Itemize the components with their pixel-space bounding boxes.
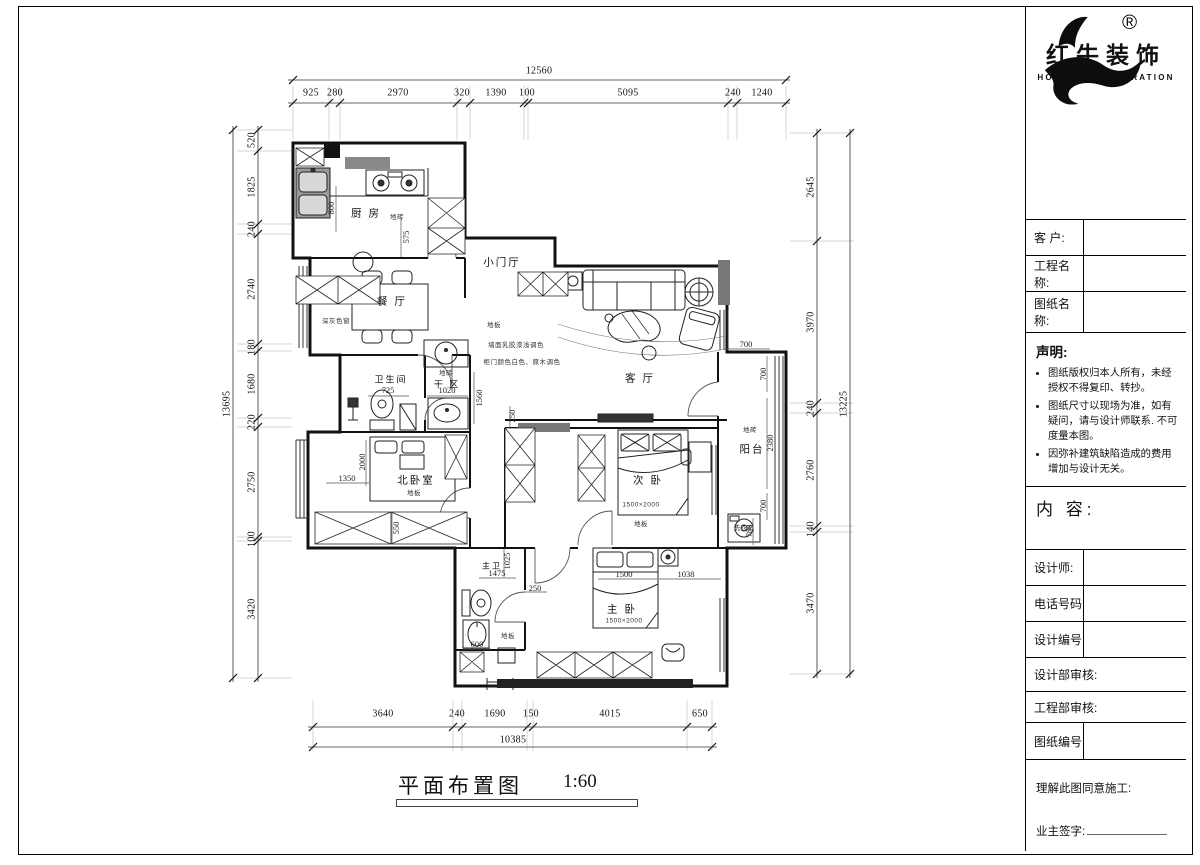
room-label-north-bedroom: 北卧室 (397, 473, 435, 488)
phone-label: 电话号码 (1026, 586, 1084, 621)
plan-dim-800: 800 (326, 202, 336, 215)
dim-top-total: 12560 (526, 66, 553, 77)
field-drawing-name: 图纸名称: (1026, 292, 1186, 333)
room-label-kitchen: 厨 房 (351, 206, 381, 221)
dim-top-5: 1390 (485, 88, 506, 99)
plan-dim-2000: 2000 (357, 454, 367, 471)
dim-top-9: 1240 (751, 88, 772, 99)
field-design-review: 设计部审核: (1026, 658, 1186, 692)
plan-dim-700b: 700 (758, 368, 768, 381)
note-wall-paint: 墙面乳胶漆浅调色 (488, 339, 544, 349)
engineering-review-label: 工程部审核: (1026, 699, 1097, 716)
hongniu-bull-logo-icon: ® (1026, 6, 1146, 106)
field-designer: 设计师: (1026, 550, 1186, 586)
room-label-bathroom: 卫生间 (374, 373, 407, 386)
dim-left-6: 1680 (247, 373, 258, 394)
plan-dim-250b: 250 (507, 410, 517, 423)
owner-signature-label: 业主签字: (1036, 826, 1085, 838)
note-second-bed-size: 1500×2000 (622, 502, 659, 509)
registered-mark: ® (1122, 11, 1137, 34)
title-underline-bar (396, 799, 638, 807)
plan-scale: 1:60 (563, 771, 597, 793)
dim-top-4: 320 (454, 88, 470, 99)
dim-top-1: 925 (303, 88, 319, 99)
dim-top-3: 2970 (387, 88, 408, 99)
plan-dim-1350: 1350 (339, 473, 356, 483)
dim-top-7: 5095 (617, 88, 638, 99)
plan-dim-600: 600 (471, 639, 484, 649)
dim-left-5: 180 (247, 339, 258, 355)
note-north-floor: 地板 (407, 487, 421, 497)
dim-bottom-6: 650 (692, 709, 708, 720)
statement-item: 图纸尺寸以现场为准，如有疑问，请与设计师联系. 不可度量本图。 (1048, 400, 1180, 445)
plan-dim-2380: 2380 (765, 435, 775, 452)
logo-cell: ® 红牛装饰 HONG NIU DECORATION (1026, 6, 1186, 220)
designer-label: 设计师: (1026, 550, 1084, 585)
plan-dim-1475: 1475 (489, 568, 506, 578)
statement-list: 图纸版权归本人所有，未经授权不得复印、转抄。 图纸尺寸以现场为准，如有疑问，请与… (1036, 367, 1180, 477)
room-label-balcony: 阳台 (740, 442, 765, 457)
field-project-name: 工程名称: (1026, 256, 1186, 292)
note-cabinet-color: 柜门颜色白色、原木调色 (484, 356, 561, 366)
plan-dim-550: 550 (391, 522, 401, 535)
dim-left-4: 2740 (247, 278, 258, 299)
statement-item: 图纸版权归本人所有，未经授权不得复印、转抄。 (1048, 367, 1180, 397)
dim-left-total: 13695 (222, 391, 233, 418)
dim-left-10: 3420 (247, 598, 258, 619)
note-kitchen-tile: 地砖 (390, 211, 404, 221)
design-number-label: 设计编号 (1026, 622, 1084, 657)
dim-top-8: 240 (725, 88, 741, 99)
field-design-number: 设计编号 (1026, 622, 1186, 658)
dim-left-7: 220 (247, 414, 258, 430)
plan-dim-575: 575 (401, 231, 411, 244)
drawing-name-label: 图纸名称: (1026, 292, 1084, 332)
field-drawing-number: 图纸编号 (1026, 723, 1186, 760)
room-label-dining: 餐 厅 (377, 294, 407, 309)
dim-right-3: 240 (806, 400, 817, 416)
dim-top-2: 280 (327, 88, 343, 99)
owner-signature-line (1087, 822, 1167, 835)
note-master-bed-size: 1500×2000 (605, 618, 642, 625)
floor-plan-drawing (0, 0, 1200, 865)
dim-right-5: 140 (806, 521, 817, 537)
room-label-foyer: 小门厅 (483, 255, 521, 270)
dim-bottom-5: 4015 (599, 709, 620, 720)
plan-dim-1038: 1038 (678, 569, 695, 579)
content-section: 内 容: (1026, 487, 1186, 550)
agree-construction-label: 理解此图同意施工: (1036, 780, 1186, 796)
room-label-master-bedroom: 主 卧 (607, 602, 637, 617)
dim-bottom-4: 150 (523, 709, 539, 720)
dim-right-2: 3970 (806, 311, 817, 332)
dim-right-1: 2645 (806, 176, 817, 197)
dim-right-total: 13225 (839, 391, 850, 418)
note-balcony-tile: 地砖 (743, 424, 757, 434)
client-label: 客 户: (1026, 220, 1084, 255)
plan-dim-1560: 1560 (474, 390, 484, 407)
plan-dim-725: 725 (382, 385, 395, 395)
dim-bottom-total: 10385 (500, 735, 527, 746)
design-review-label: 设计部审核: (1026, 666, 1097, 683)
plan-dim-1025: 1025 (502, 553, 512, 570)
dim-left-8: 2750 (247, 471, 258, 492)
note-washing-machine: 洗衣机 (734, 522, 755, 532)
project-name-label: 工程名称: (1026, 256, 1084, 291)
note-dry-tile: 地砖 (439, 367, 453, 377)
dim-bottom-1: 3640 (372, 709, 393, 720)
content-label: 内 容: (1036, 500, 1095, 519)
signature-section: 理解此图同意施工: 业主签字: (1026, 760, 1186, 851)
note-master-floor: 地板 (501, 630, 515, 640)
plan-title: 平面布置图 (398, 770, 523, 800)
plan-dim-1500: 1500 (616, 569, 633, 579)
note-foyer-floor: 地板 (487, 319, 501, 329)
dim-top-6: 100 (519, 88, 535, 99)
room-label-living: 客 厅 (625, 371, 655, 386)
dim-left-9: 100 (247, 531, 258, 547)
statement-item: 因弥补建筑缺陷造成的费用增加与设计无关。 (1048, 448, 1180, 478)
dim-bottom-3: 1690 (484, 709, 505, 720)
plan-dim-1020: 1020 (439, 385, 456, 395)
dim-left-2: 1825 (247, 176, 258, 197)
plan-dim-700c: 700 (758, 500, 768, 513)
drawing-number-label: 图纸编号 (1026, 723, 1084, 759)
field-engineering-review: 工程部审核: (1026, 692, 1186, 723)
plan-dim-250a: 250 (529, 583, 542, 593)
note-second-floor: 地板 (634, 518, 648, 528)
drawing-sheet: 12560 925 280 2970 320 1390 100 5095 240… (0, 0, 1200, 865)
dim-bottom-2: 240 (449, 709, 465, 720)
field-phone: 电话号码 (1026, 586, 1186, 622)
plan-dim-700a: 700 (740, 339, 753, 349)
dim-right-4: 2760 (806, 459, 817, 480)
statement-title: 声明: (1036, 341, 1180, 361)
dim-left-1: 520 (247, 132, 258, 148)
note-curtain: 深灰色窗 (322, 315, 350, 325)
dim-right-6: 3470 (806, 592, 817, 613)
field-client: 客 户: (1026, 220, 1186, 256)
room-label-second-bedroom: 次 卧 (633, 473, 663, 488)
statement-section: 声明: 图纸版权归本人所有，未经授权不得复印、转抄。 图纸尺寸以现场为准，如有疑… (1026, 333, 1186, 487)
title-block-panel: ® 红牛装饰 HONG NIU DECORATION 客 户: 工程名称: 图纸… (1025, 6, 1186, 851)
dim-left-3: 240 (247, 221, 258, 237)
